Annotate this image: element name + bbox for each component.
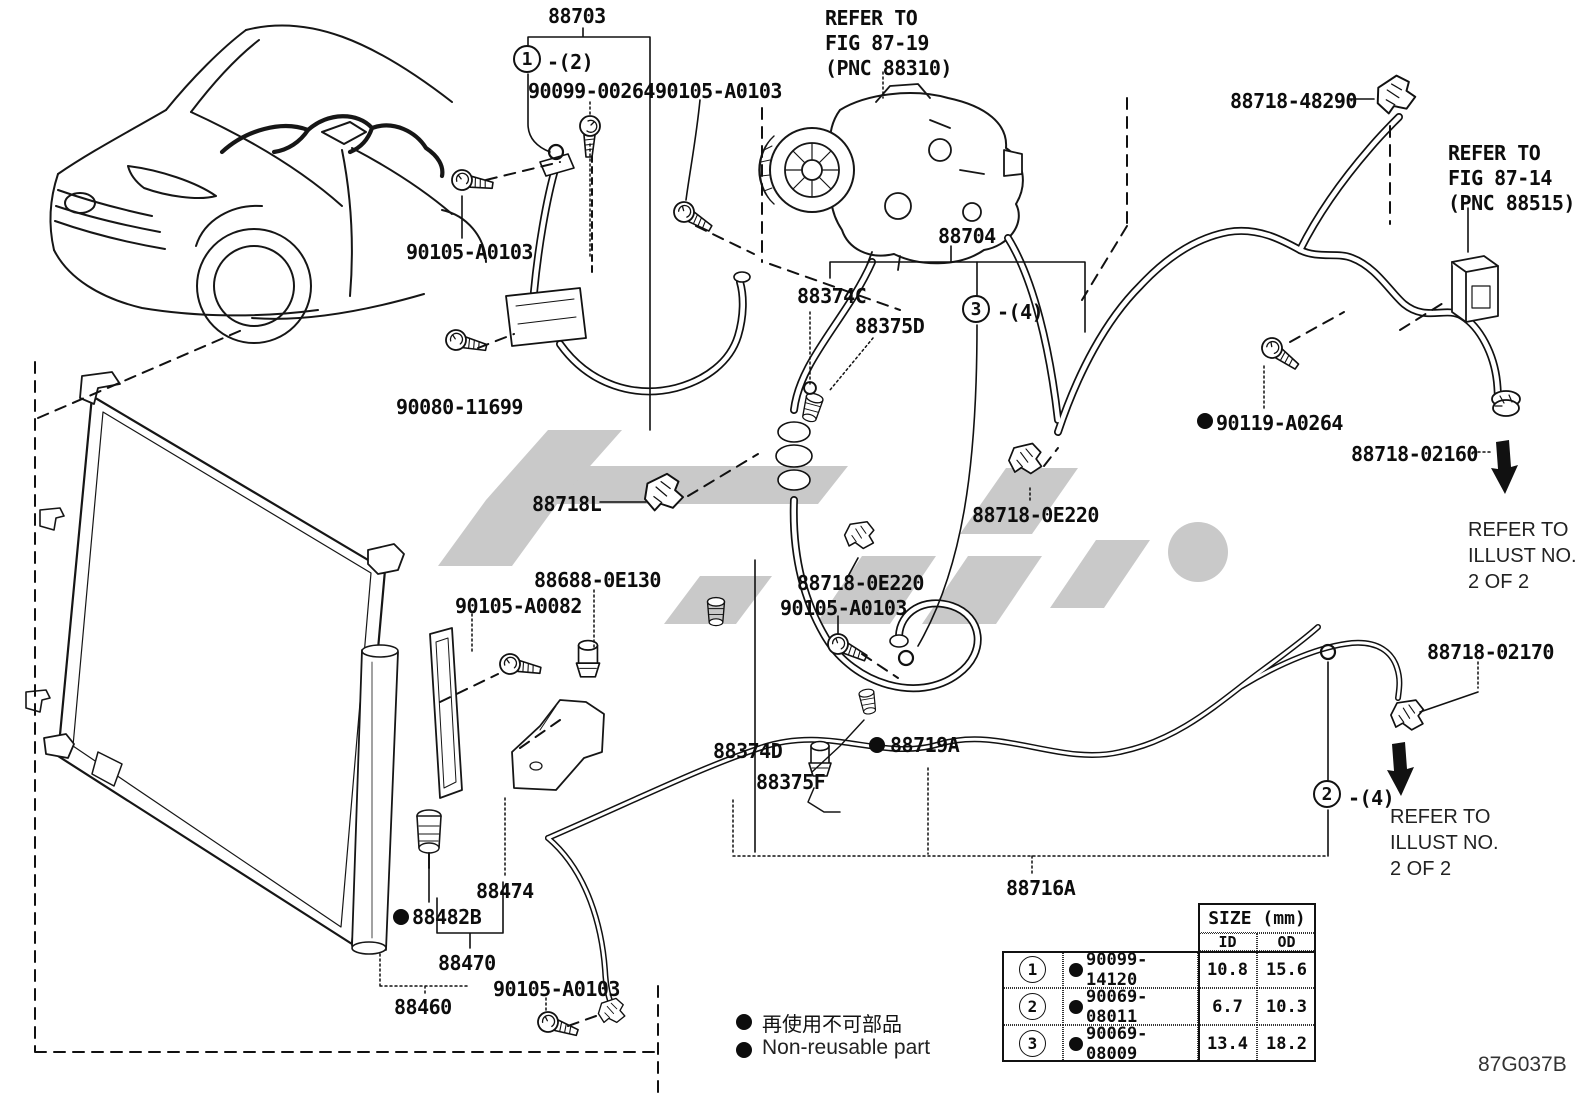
- table-row-1-id: 10.8: [1198, 951, 1257, 988]
- part-label-90080-11699: 90080-11699: [396, 395, 523, 419]
- grommet-88718-02160: [1492, 391, 1520, 416]
- clip-88718-02170: [1389, 696, 1427, 731]
- part-label-88474: 88474: [476, 879, 534, 903]
- bolt-90105-a0103-bottom: [535, 1009, 580, 1041]
- part-number: 90069-08009: [1086, 1024, 1197, 1064]
- callout-3-qty: -(4): [997, 300, 1043, 324]
- o-ring-icon: [899, 651, 913, 665]
- part-label-88375D: 88375D: [855, 314, 924, 338]
- callout-3-badge: 3: [1019, 1030, 1046, 1057]
- part-label-88460: 88460: [394, 995, 452, 1019]
- part-label-88374C: 88374C: [797, 284, 866, 308]
- drier-element-88474: [430, 628, 462, 798]
- non-reusable-bullet-icon: [736, 1014, 752, 1030]
- tube-fitting-88374C: [800, 392, 824, 423]
- clip-88718-0e220-upper: [1008, 442, 1043, 475]
- table-row-2-od: 10.3: [1257, 988, 1316, 1025]
- non-reusable-bullet-icon: [1197, 413, 1213, 429]
- figure-code: 87G037B: [1478, 1053, 1567, 1077]
- callout-1-badge: 1: [1019, 956, 1046, 983]
- engine-bay-piping: [222, 116, 442, 176]
- part-label-88718-02170: 88718-02170: [1427, 640, 1554, 664]
- table-row-3-od: 18.2: [1257, 1025, 1316, 1062]
- callout-2-qty: -(4): [1348, 786, 1394, 810]
- part-label-88470: 88470: [438, 951, 496, 975]
- part-label-88718-48290: 88718-48290: [1230, 89, 1357, 113]
- table-row-3-num: 3: [1002, 1025, 1063, 1062]
- callout-2-badge: 2: [1313, 780, 1341, 808]
- part-label-90105-a0103-top: 90105-A0103: [655, 79, 782, 103]
- condenser-illustration: [26, 372, 462, 954]
- part-label-90105-a0103-bottom: 90105-A0103: [493, 977, 620, 1001]
- ref-note-fig-87-19: REFER TO FIG 87-19 (PNC 88310): [825, 6, 952, 81]
- callout-1-badge: 1: [513, 45, 541, 73]
- non-reusable-bullet-icon: [736, 1042, 752, 1058]
- part-label-88718-0e220-lower: 88718-0E220: [797, 571, 924, 595]
- part-number: 90099-14120: [1086, 950, 1197, 990]
- non-reusable-bullet-icon: [1069, 1000, 1083, 1014]
- part-label-88718-02160: 88718-02160: [1351, 442, 1478, 466]
- table-row-1-num: 1: [1002, 951, 1063, 988]
- clip-bottom: [598, 998, 624, 1022]
- ref-note-illust-right: REFER TO ILLUST NO. 2 OF 2: [1468, 517, 1577, 595]
- part-number: 90069-08011: [1086, 987, 1197, 1027]
- size-table-header: SIZE (mm): [1198, 903, 1316, 933]
- expansion-valve-88515: [1452, 256, 1498, 322]
- legend-jp: 再使用不可部品: [762, 1008, 902, 1037]
- bolt-90119-a0264: [1258, 334, 1303, 374]
- part-label-88704: 88704: [938, 224, 996, 248]
- bolt-90105-a0103-top: [670, 198, 716, 236]
- legend-en: Non-reusable part: [762, 1036, 930, 1060]
- non-reusable-bullet-icon: [1069, 1037, 1083, 1051]
- vehicle-illustration: [51, 25, 486, 343]
- receiver-drier: [352, 645, 398, 954]
- callout-1-qty: -(2): [547, 50, 593, 74]
- part-label-90119-a0264: 90119-A0264: [1216, 411, 1343, 435]
- part-label-90105-a0103-left: 90105-A0103: [406, 240, 533, 264]
- part-label-88375F: 88375F: [756, 770, 825, 794]
- part-label-88716A: 88716A: [1006, 876, 1075, 900]
- bolt-90105-a0082: [498, 652, 542, 679]
- part-label-88688-0e130: 88688-0E130: [534, 568, 661, 592]
- part-label-90099-00264: 90099-00264: [528, 79, 655, 103]
- ref-note-fig-87-14: REFER TO FIG 87-14 (PNC 88515): [1448, 141, 1575, 216]
- diagram-line-art: [0, 0, 1592, 1099]
- tube-fitting-88375F: [858, 688, 877, 715]
- table-row-1-part: 90099-14120: [1063, 951, 1198, 988]
- table-row-3-part: 90069-08009: [1063, 1025, 1198, 1062]
- clip-88718-0e220-lower: [843, 518, 877, 550]
- size-table-od-header: OD: [1257, 933, 1316, 951]
- clip-88718-48290: [1372, 72, 1418, 115]
- size-table: SIZE (mm) ID OD 1 90099-14120 10.8 15.6 …: [1002, 903, 1316, 1062]
- non-reusable-bullet-icon: [869, 737, 885, 753]
- ref-note-illust-lower: REFER TO ILLUST NO. 2 OF 2: [1390, 804, 1499, 882]
- part-label-88374D: 88374D: [713, 739, 782, 763]
- part-label-88703: 88703: [548, 4, 606, 28]
- part-label-88718-0e220-upper: 88718-0E220: [972, 503, 1099, 527]
- table-row-2-id: 6.7: [1198, 988, 1257, 1025]
- part-label-88482B: 88482B: [412, 905, 481, 929]
- table-row-2-part: 90069-08011: [1063, 988, 1198, 1025]
- callout-3-badge: 3: [962, 295, 990, 323]
- part-label-90105-a0082: 90105-A0082: [455, 594, 582, 618]
- part-label-88718L: 88718L: [532, 492, 601, 516]
- non-reusable-bullet-icon: [393, 909, 409, 925]
- cap-88482B: [417, 810, 441, 868]
- table-row-1-od: 15.6: [1257, 951, 1316, 988]
- bolt-90080-11699: [444, 328, 488, 356]
- table-row-2-num: 2: [1002, 988, 1063, 1025]
- part-label-90105-a0103-mid: 90105-A0103: [780, 596, 907, 620]
- bolt-90105-a0103-left: [451, 169, 494, 195]
- refer-arrow-icon: [1491, 440, 1518, 494]
- parts-diagram-page: 88703 1 -(2) 90099-00264 90105-A0103 901…: [0, 0, 1592, 1099]
- table-row-3-id: 13.4: [1198, 1025, 1257, 1062]
- size-table-id-header: ID: [1198, 933, 1257, 951]
- non-reusable-bullet-icon: [1069, 963, 1083, 977]
- callout-2-badge: 2: [1019, 993, 1046, 1020]
- sensor-88688: [576, 641, 599, 677]
- part-label-88719A: 88719A: [890, 733, 959, 757]
